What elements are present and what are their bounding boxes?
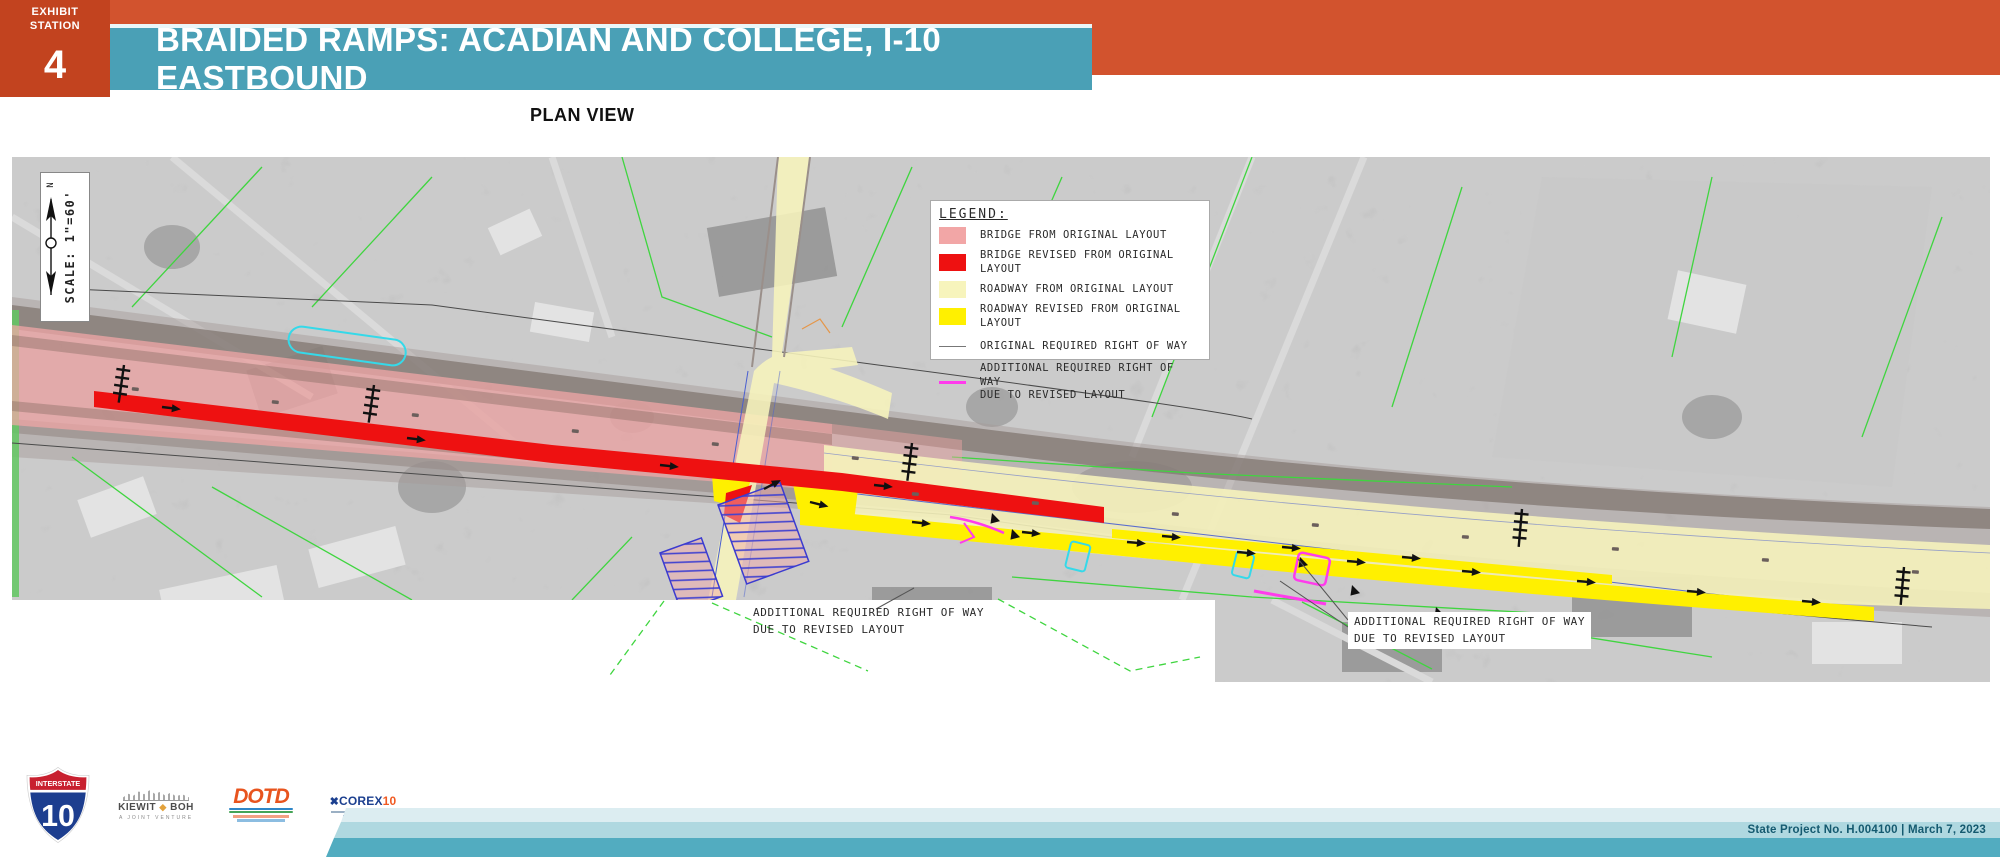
exhibit-station-tab: EXHIBIT STATION 4 [0,0,110,97]
title-banner: BRAIDED RAMPS: ACADIAN AND COLLEGE, I-10… [110,24,1092,90]
interstate-10-shield: INTERSTATE 10 [25,765,91,845]
fleur-de-lis-icon: ◆ [159,802,166,812]
dotd-caption-line1 [233,815,289,818]
scale-box: N SCALE: 1"=60' [40,172,90,322]
svg-text:N: N [46,182,56,187]
legend-swatch-yellow [939,308,966,325]
map-legend: LEGEND: BRIDGE FROM ORIGINAL LAYOUT BRID… [930,200,1210,360]
north-arrow-icon: N [43,177,59,317]
kiewit-subtitle: A JOINT VENTURE [117,815,195,821]
plan-view-label: PLAN VIEW [530,105,635,126]
legend-item-original-row: ORIGINAL REQUIRED RIGHT OF WAY [939,340,1201,354]
legend-swatch-pale-yellow [939,281,966,298]
legend-item-bridge-original: BRIDGE FROM ORIGINAL LAYOUT [939,227,1201,244]
dotd-wave-blue [229,808,293,810]
scale-label: SCALE: 1"=60' [63,190,77,303]
footer-stripes: State Project No. H.004100 | March 7, 20… [300,808,2000,857]
legend-item-roadway-original: ROADWAY FROM ORIGINAL LAYOUT [939,281,1201,298]
dotd-caption-line2 [237,819,285,822]
legend-title: LEGEND: [939,207,1201,222]
plan-view-map: N SCALE: 1"=60' LEGEND: BRIDGE FROM ORIG… [12,157,1990,682]
corex-name: COREX [339,794,383,808]
dotd-wordmark: DOTD [229,788,293,807]
dotd-logo: DOTD [229,788,293,822]
corex-mark-icon: ✖ [330,796,339,808]
shield-top-label: INTERSTATE [36,779,81,788]
legend-item-roadway-revised: ROADWAY REVISED FROM ORIGINAL LAYOUT [939,303,1201,330]
shield-number: 10 [41,800,75,833]
legend-item-bridge-revised: BRIDGE REVISED FROM ORIGINAL LAYOUT [939,249,1201,276]
legend-swatch-pink [939,227,966,244]
kiewit-boh-logo: KIEWIT ◆ BOH A JOINT VENTURE [117,789,195,821]
legend-item-additional-row: ADDITIONAL REQUIRED RIGHT OF WAY DUE TO … [939,362,1201,403]
annotation-additional-row-right: ADDITIONAL REQUIRED RIGHT OF WAY DUE TO … [1348,612,1591,649]
legend-line-gray [939,346,966,347]
kiewit-name: KIEWIT [118,802,156,813]
footer: INTERSTATE 10 KIEWIT ◆ BOH A JOINT VENTU… [0,757,2000,857]
corex-suffix: 10 [383,794,397,808]
exhibit-station-number: 4 [0,43,110,88]
exhibit-page: { "exhibit_tab": { "label": "EXHIBIT\nST… [0,0,2000,857]
footer-stripe-medium: State Project No. H.004100 | March 7, 20… [300,822,2000,838]
footer-stripe-light [300,808,2000,822]
annotation-additional-row-left: ADDITIONAL REQUIRED RIGHT OF WAY DUE TO … [753,605,984,638]
exhibit-station-label: EXHIBIT STATION [0,0,110,34]
boh-name: BOH [170,802,194,813]
kiewit-skyline-icon [123,789,189,801]
dotd-wave-green [229,811,293,813]
legend-line-magenta [939,381,966,384]
legend-swatch-red [939,254,966,271]
footer-stripe-dark [300,838,2000,857]
project-info: State Project No. H.004100 | March 7, 20… [1747,824,2000,836]
page-title: BRAIDED RAMPS: ACADIAN AND COLLEGE, I-10… [156,21,1092,97]
